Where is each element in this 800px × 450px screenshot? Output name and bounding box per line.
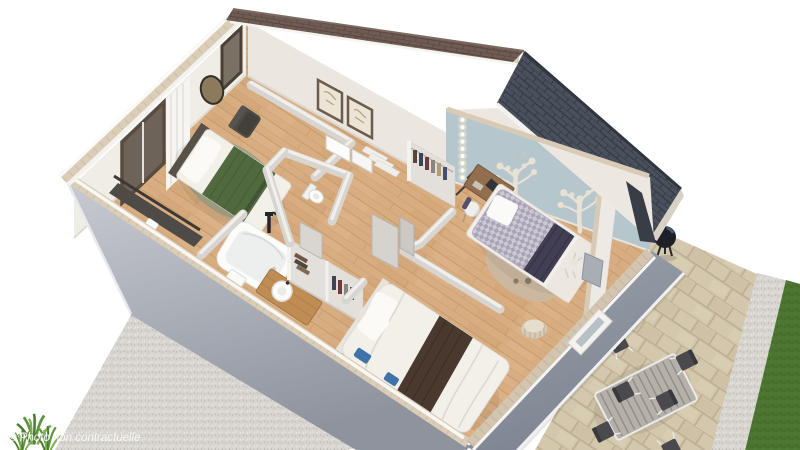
string-lights (458, 116, 467, 183)
floorplan-render-page: © Photo non contractuelle (0, 0, 800, 450)
pouf (521, 320, 547, 339)
watermark-text: © Photo non contractuelle (8, 432, 141, 444)
floorplan-render-3d: © Photo non contractuelle (0, 0, 800, 450)
